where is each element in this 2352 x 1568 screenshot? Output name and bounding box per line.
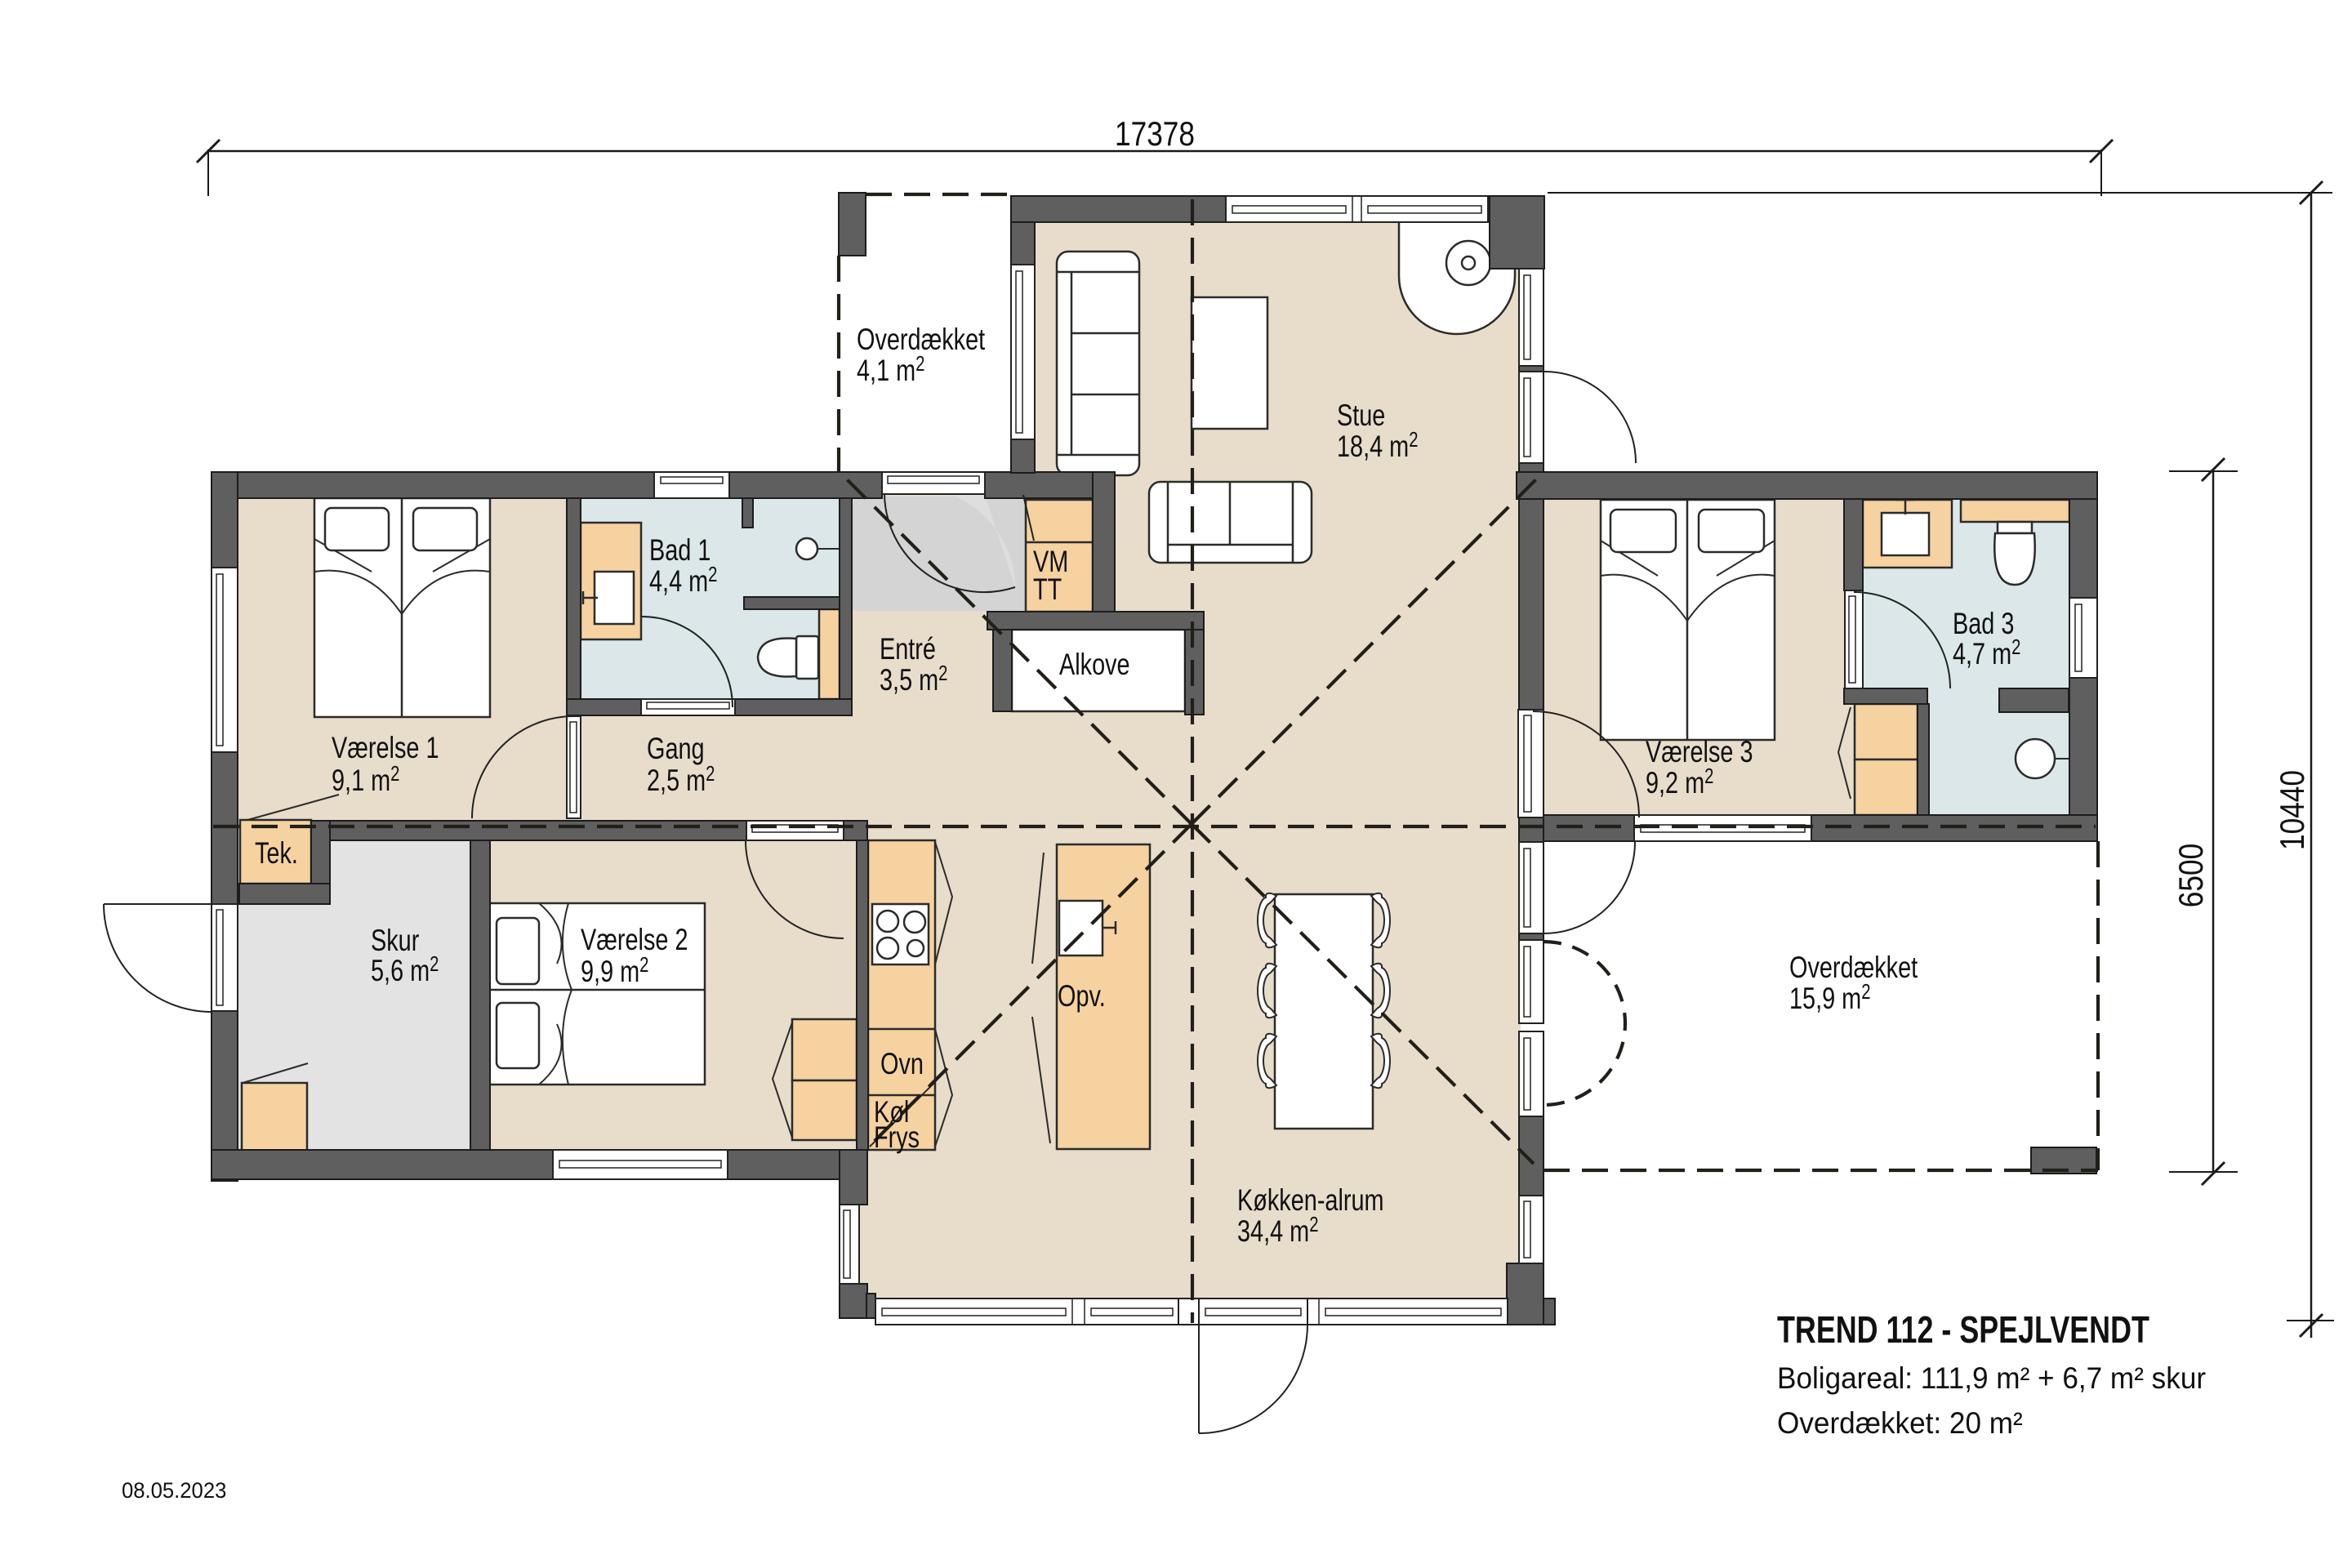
svg-text:Værelse 3: Værelse 3 bbox=[1646, 736, 1753, 769]
svg-text:Alkove: Alkove bbox=[1059, 648, 1130, 682]
svg-text:08.05.2023: 08.05.2023 bbox=[122, 1477, 226, 1503]
svg-text:Skur: Skur bbox=[371, 924, 419, 958]
svg-text:TT: TT bbox=[1033, 573, 1062, 607]
svg-text:9,1 m2: 9,1 m2 bbox=[332, 762, 399, 798]
svg-text:Stue: Stue bbox=[1337, 399, 1385, 433]
svg-text:Værelse 1: Værelse 1 bbox=[332, 732, 439, 765]
svg-text:10440: 10440 bbox=[2274, 770, 2312, 850]
svg-text:Tek.: Tek. bbox=[255, 837, 298, 871]
svg-text:18,4 m2: 18,4 m2 bbox=[1337, 428, 1418, 464]
svg-text:Boligareal: 111,9 m² + 6,7 m²: Boligareal: 111,9 m² + 6,7 m² skur bbox=[1777, 1361, 2206, 1395]
svg-text:4,4 m2: 4,4 m2 bbox=[649, 563, 717, 599]
svg-text:Frys: Frys bbox=[874, 1121, 920, 1155]
svg-text:9,2 m2: 9,2 m2 bbox=[1646, 764, 1713, 800]
svg-text:9,9 m2: 9,9 m2 bbox=[581, 953, 648, 989]
svg-text:34,4 m2: 34,4 m2 bbox=[1237, 1213, 1318, 1249]
svg-text:Værelse 2: Værelse 2 bbox=[581, 924, 688, 957]
svg-text:4,1 m2: 4,1 m2 bbox=[857, 352, 924, 388]
svg-text:Gang: Gang bbox=[647, 733, 705, 766]
svg-text:15,9 m2: 15,9 m2 bbox=[1789, 980, 1870, 1016]
svg-text:2,5 m2: 2,5 m2 bbox=[647, 762, 715, 798]
svg-text:17378: 17378 bbox=[1115, 115, 1195, 154]
svg-text:6500: 6500 bbox=[2172, 844, 2211, 907]
svg-text:4,7 m2: 4,7 m2 bbox=[1953, 635, 2020, 671]
svg-text:Opv.: Opv. bbox=[1058, 980, 1106, 1013]
svg-text:Overdækket: Overdækket bbox=[1789, 951, 1918, 985]
svg-text:Bad 1: Bad 1 bbox=[649, 534, 710, 568]
svg-text:Ovn: Ovn bbox=[880, 1048, 924, 1081]
svg-text:Overdækket: 20 m²: Overdækket: 20 m² bbox=[1777, 1405, 2023, 1440]
svg-text:TREND 112 - SPEJLVENDT: TREND 112 - SPEJLVENDT bbox=[1777, 1309, 2149, 1351]
svg-text:3,5 m2: 3,5 m2 bbox=[880, 661, 947, 697]
svg-text:Bad 3: Bad 3 bbox=[1953, 608, 2014, 641]
svg-text:5,6 m2: 5,6 m2 bbox=[371, 952, 439, 988]
svg-text:Entré: Entré bbox=[880, 633, 936, 666]
